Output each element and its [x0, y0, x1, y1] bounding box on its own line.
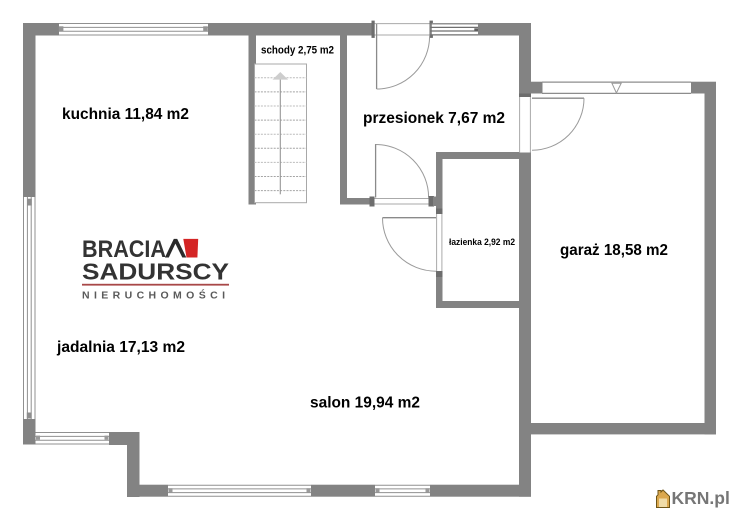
svg-text:KRN.pl: KRN.pl	[672, 488, 730, 508]
svg-text:SADURSCY: SADURSCY	[82, 259, 229, 285]
svg-text:jadalnia 17,13 m2: jadalnia 17,13 m2	[56, 339, 185, 356]
svg-text:łazienka 2,92 m2: łazienka 2,92 m2	[449, 237, 515, 248]
svg-text:salon 19,94 m2: salon 19,94 m2	[310, 395, 420, 412]
svg-text:garaż 18,58 m2: garaż 18,58 m2	[560, 242, 668, 259]
svg-text:schody 2,75 m2: schody 2,75 m2	[261, 44, 334, 56]
svg-text:kuchnia 11,84 m2: kuchnia 11,84 m2	[62, 106, 189, 123]
svg-text:przesionek 7,67 m2: przesionek 7,67 m2	[363, 110, 505, 127]
svg-text:NIERUCHOMOŚCI: NIERUCHOMOŚCI	[82, 289, 225, 302]
